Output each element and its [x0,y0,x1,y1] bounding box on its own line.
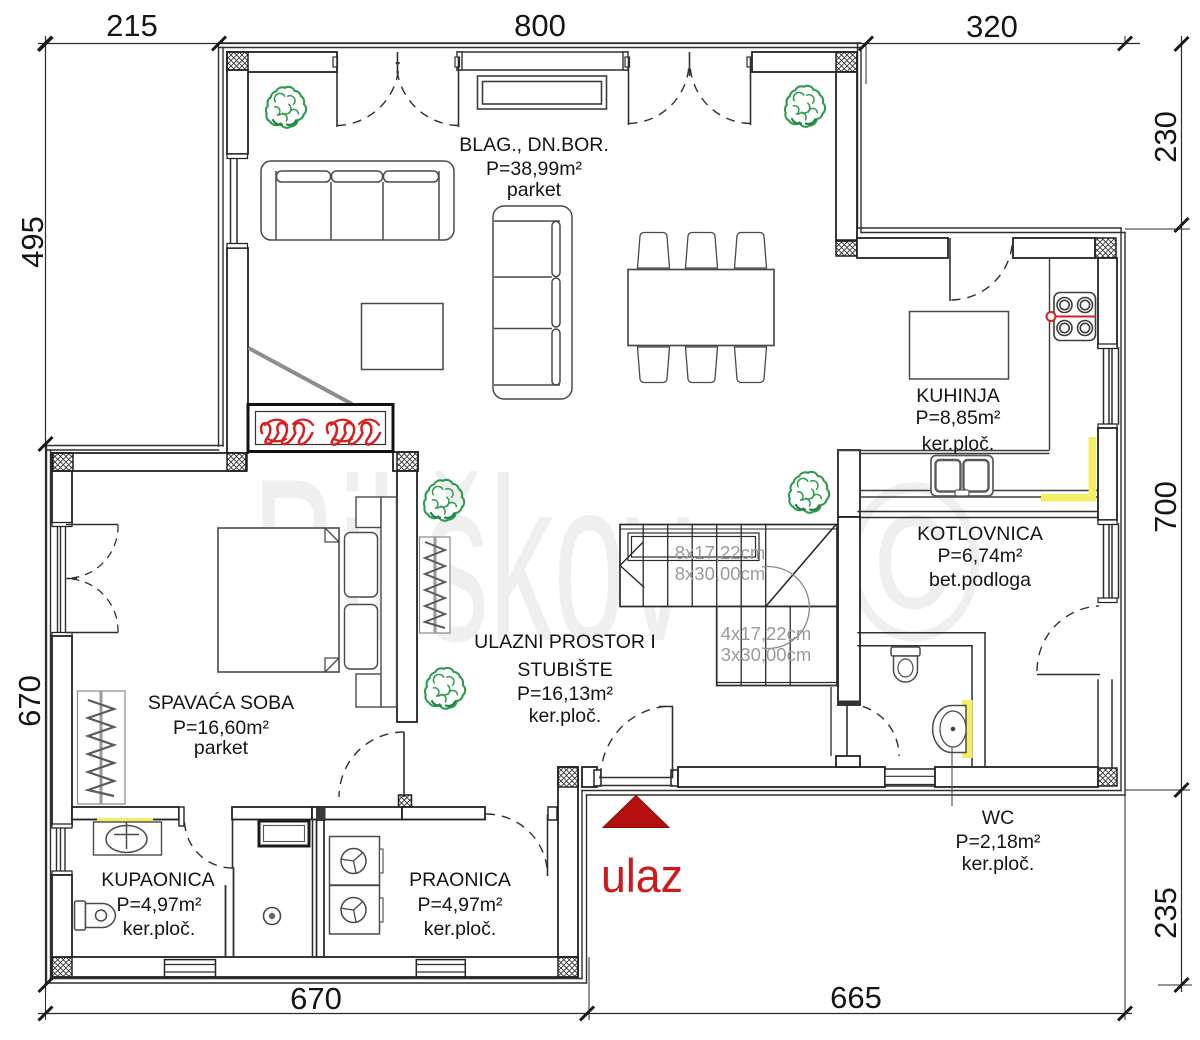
svg-text:KUPAONICA: KUPAONICA [101,869,214,891]
svg-text:8x17,22cm: 8x17,22cm [675,542,766,563]
svg-text:P=16,13m²: P=16,13m² [517,683,613,705]
svg-text:ker.ploč.: ker.ploč. [962,853,1035,875]
svg-text:P=4,97m²: P=4,97m² [417,894,503,916]
svg-text:PRAONICA: PRAONICA [409,869,511,891]
svg-text:P=8,85m²: P=8,85m² [915,407,1001,429]
svg-text:ulaz: ulaz [601,849,683,902]
svg-text:8x30,00cm: 8x30,00cm [675,563,766,584]
svg-text:P=38,99m²: P=38,99m² [486,158,582,180]
svg-text:215: 215 [106,8,158,43]
svg-text:670: 670 [290,981,342,1016]
svg-text:700: 700 [1148,481,1183,533]
svg-text:230: 230 [1148,111,1183,163]
svg-text:ker.ploč.: ker.ploč. [424,918,497,940]
svg-text:ker.ploč.: ker.ploč. [123,918,196,940]
svg-text:WC: WC [982,807,1015,829]
svg-text:3x30,00cm: 3x30,00cm [721,644,812,665]
svg-text:670: 670 [12,675,47,727]
svg-text:SPAVAĆA SOBA: SPAVAĆA SOBA [148,691,294,714]
svg-text:P=4,97m²: P=4,97m² [116,894,202,916]
svg-text:STUBIŠTE: STUBIŠTE [517,658,612,681]
svg-text:ker.ploč.: ker.ploč. [529,705,602,727]
svg-text:parket: parket [194,737,249,759]
svg-text:235: 235 [1148,887,1183,939]
svg-text:parket: parket [507,179,562,201]
svg-text:495: 495 [15,216,50,268]
svg-text:KOTLOVNICA: KOTLOVNICA [917,523,1043,545]
svg-text:4x17,22cm: 4x17,22cm [721,623,812,644]
svg-text:ker.ploč.: ker.ploč. [922,433,995,455]
svg-text:P=2,18m²: P=2,18m² [955,831,1041,853]
svg-text:BLAG., DN.BOR.: BLAG., DN.BOR. [459,134,609,156]
svg-text:800: 800 [514,8,566,43]
svg-text:P=6,74m²: P=6,74m² [937,545,1023,567]
svg-text:KUHINJA: KUHINJA [916,385,999,407]
svg-text:ULAZNI PROSTOR I: ULAZNI PROSTOR I [474,631,656,653]
svg-text:bet.podloga: bet.podloga [929,569,1031,591]
svg-text:665: 665 [830,980,882,1015]
svg-text:320: 320 [966,9,1018,44]
svg-text:P=16,60m²: P=16,60m² [173,717,269,739]
